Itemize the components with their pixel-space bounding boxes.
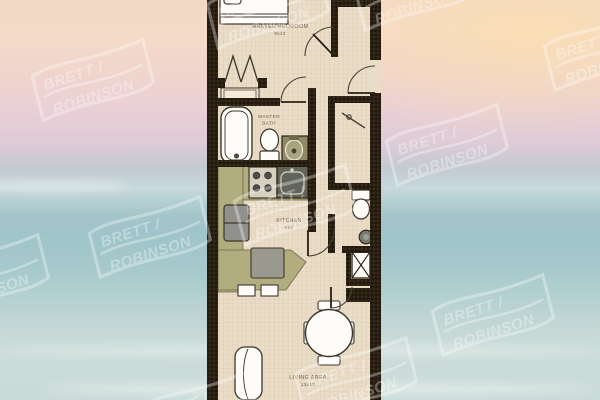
- vanity-sink-master: [282, 136, 308, 164]
- room-label-living-area: LIVING AREA: [289, 375, 326, 381]
- bar-stool: [238, 285, 255, 296]
- sofa: [235, 347, 262, 400]
- room-label-kitchen: KITCHEN: [276, 218, 301, 224]
- floor-plan: MASTER BEDROOM 9x12 MASTER BATH KITCHEN …: [205, 0, 383, 400]
- bathtub: [221, 107, 252, 164]
- bar-stool: [261, 285, 278, 296]
- room-dims-kitchen: 9x5: [285, 225, 294, 230]
- room-label-master-bedroom: MASTER BEDROOM: [252, 24, 309, 30]
- kitchen-island: [251, 248, 284, 278]
- utility-chase: [352, 252, 370, 278]
- room-dims-master-bedroom: 9x12: [274, 31, 285, 36]
- room-label-master-bath2: BATH: [262, 121, 276, 127]
- toilet-master: [260, 129, 279, 163]
- room-dims-living-area: 13x13: [301, 382, 315, 387]
- refrigerator: [224, 205, 249, 241]
- stove: [249, 167, 277, 198]
- floorplan-screenshot: MASTER BEDROOM 9x12 MASTER BATH KITCHEN …: [0, 0, 600, 400]
- toilet-hall-bath: [352, 190, 370, 219]
- kitchen-sink: [277, 166, 308, 198]
- room-label-master-bath: MASTER: [258, 114, 280, 120]
- bed: [220, 0, 288, 24]
- entry-door-opening: [370, 60, 381, 93]
